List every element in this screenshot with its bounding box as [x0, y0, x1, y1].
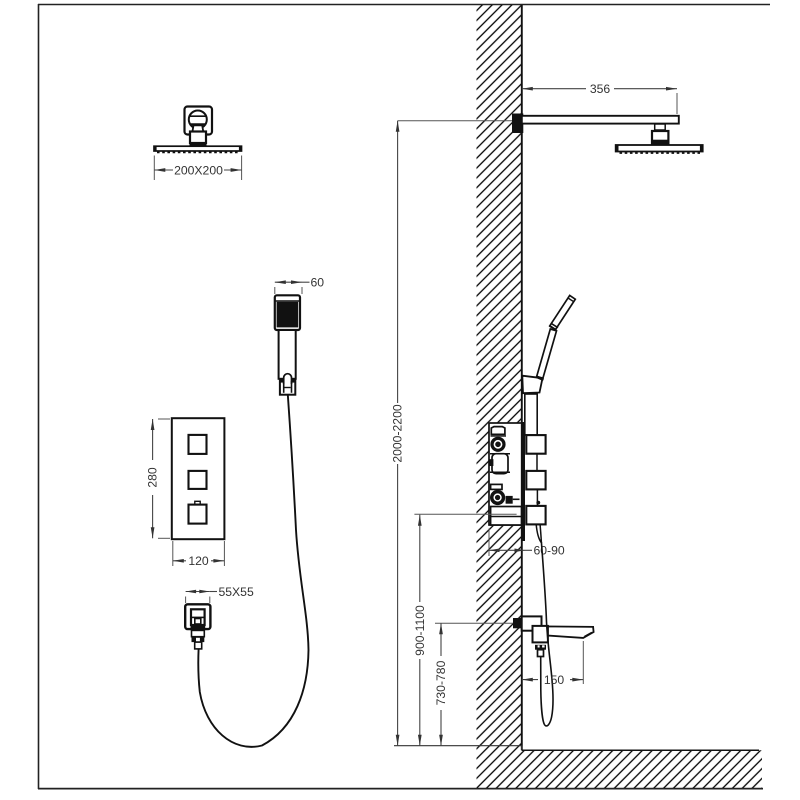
- svg-text:730-780: 730-780: [434, 660, 448, 705]
- svg-text:120: 120: [188, 554, 209, 568]
- svg-text:280: 280: [146, 467, 160, 488]
- svg-text:900-1100: 900-1100: [413, 605, 427, 656]
- svg-text:200X200: 200X200: [174, 163, 223, 177]
- svg-text:150: 150: [544, 673, 565, 687]
- svg-text:356: 356: [590, 82, 611, 96]
- svg-text:60-90: 60-90: [534, 544, 565, 558]
- svg-text:2000-2200: 2000-2200: [391, 404, 405, 463]
- svg-text:60: 60: [311, 276, 325, 290]
- svg-text:55X55: 55X55: [219, 585, 254, 599]
